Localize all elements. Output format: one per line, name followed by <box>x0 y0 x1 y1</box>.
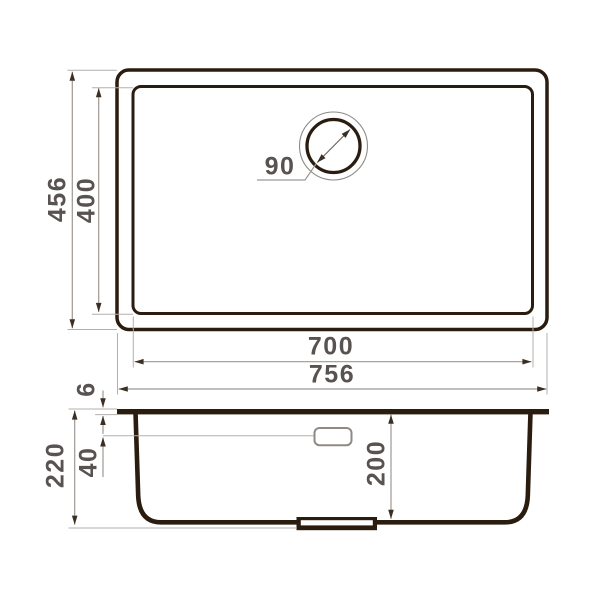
dim-label-outer-height: 456 <box>46 175 71 221</box>
overflow-hole <box>315 428 352 445</box>
drain-fitting-slot <box>301 520 373 525</box>
drain-diameter-arrow <box>317 130 350 163</box>
dim-label-overall-depth: 220 <box>44 442 69 488</box>
dim-label-inner-width: 700 <box>308 335 354 360</box>
top-view-outer-outline <box>117 70 547 330</box>
drawing-linework <box>0 0 600 600</box>
side-view-rim <box>117 409 549 414</box>
dim-label-inner-height: 400 <box>75 176 100 222</box>
dim-label-drain-diameter: 90 <box>265 155 296 180</box>
dim-label-rim-thickness: 6 <box>74 381 99 396</box>
dim-label-bowl-depth: 200 <box>364 440 389 486</box>
top-view <box>117 70 547 330</box>
dim-label-overflow-offset: 40 <box>77 447 102 478</box>
sink-dimension-drawing: 456 400 700 756 90 6 220 40 200 <box>0 0 600 600</box>
dim-label-outer-width: 756 <box>309 363 355 388</box>
